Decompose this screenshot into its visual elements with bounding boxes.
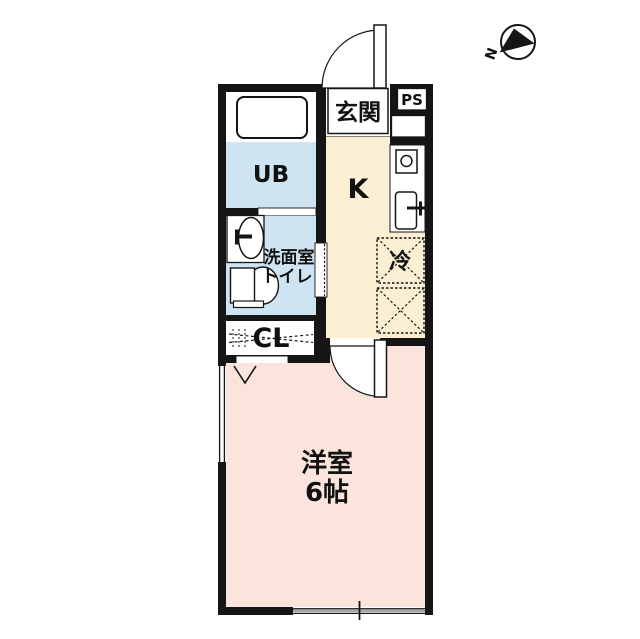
entrance-door-swing: [322, 30, 380, 88]
compass-north-label: N: [482, 46, 501, 62]
toilet-base-icon: [234, 301, 264, 308]
toilet-tank-icon: [231, 268, 255, 303]
sink-icon: [396, 192, 417, 229]
bath-door-opening: [258, 208, 316, 216]
compass: N: [482, 25, 535, 62]
unit-bath-label: UB: [253, 162, 289, 188]
western-room-label-line1: 洋室: [301, 448, 353, 479]
bathtub-icon: [237, 97, 307, 138]
meter-box: [392, 116, 426, 138]
genkan-label: 玄関: [335, 99, 381, 126]
ps-label: PS: [401, 91, 423, 109]
floor-plan: 玄関 PS K UB 洗面室 トイレ 冷 CL 洋室 6帖 N: [0, 0, 640, 639]
kitchen-floor-lower: [326, 232, 425, 338]
room-door-leaf: [375, 340, 387, 397]
floor-plan-page: 玄関 PS K UB 洗面室 トイレ 冷 CL 洋室 6帖 N: [0, 0, 640, 639]
refrigerator-label: 冷: [389, 249, 411, 275]
burner-icon: [401, 156, 412, 167]
left-window: [218, 366, 226, 462]
western-room-label-line2: 6帖: [305, 478, 349, 508]
room-door-threshold: [330, 338, 380, 346]
closet-label: CL: [252, 323, 289, 354]
room-kitchen: [315, 137, 426, 339]
washroom-door-opening: [315, 243, 327, 297]
kitchen-label: K: [348, 174, 370, 205]
room-unit-bath: [226, 92, 316, 216]
closet-door-panel: [236, 356, 288, 364]
entrance-door-leaf: [374, 25, 386, 88]
washroom-label-line2: トイレ: [262, 267, 313, 287]
washroom-label-line1: 洗面室: [264, 247, 315, 268]
